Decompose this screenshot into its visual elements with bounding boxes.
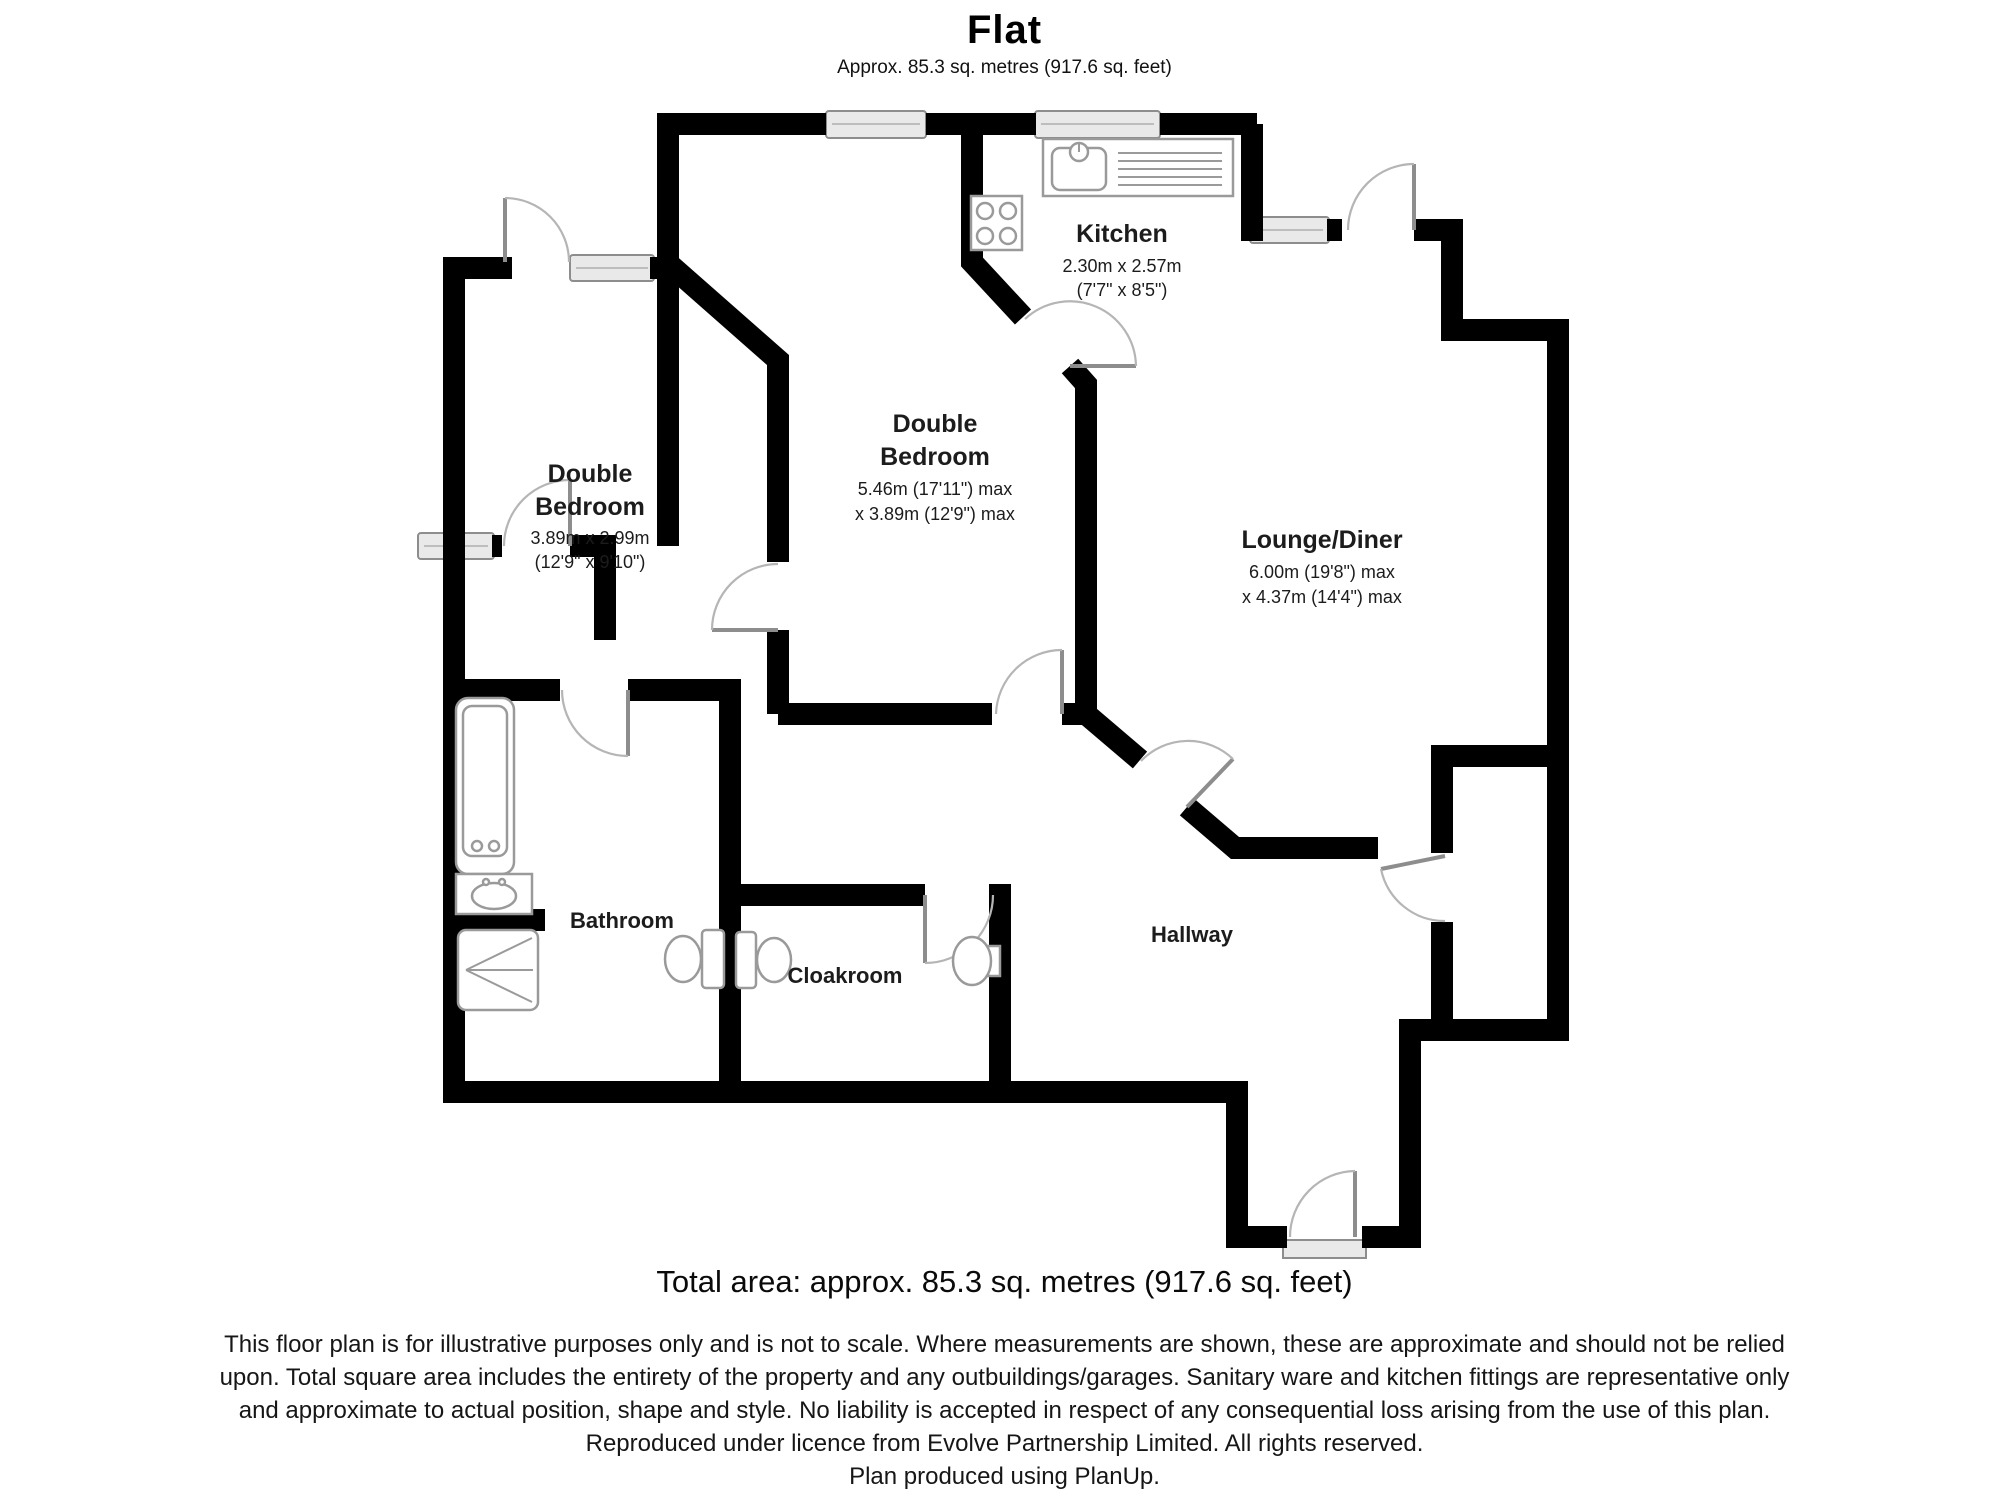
disclaimer-line: and approximate to actual position, shap… xyxy=(0,1394,2009,1427)
bathroom-toilet-icon xyxy=(665,930,724,988)
bedroom-left-label-1: Double xyxy=(548,460,633,488)
room-label-lounge: Lounge/Diner 6.00m (19'8") max x 4.37m (… xyxy=(1241,526,1402,607)
kitchen-sink-icon xyxy=(1043,139,1233,196)
lounge-dim-2: x 4.37m (14'4") max xyxy=(1242,587,1402,607)
hallway-label: Hallway xyxy=(1151,922,1234,947)
kitchen-label: Kitchen xyxy=(1076,220,1168,248)
bedroom-middle-dim-2: x 3.89m (12'9") max xyxy=(855,504,1015,524)
room-label-bedroom-left: Double Bedroom 3.89m x 2.99m (12'9" x 9'… xyxy=(530,460,649,572)
disclaimer-text: This floor plan is for illustrative purp… xyxy=(0,1328,2009,1493)
bedroom-left-dim-1: 3.89m x 2.99m xyxy=(530,528,649,548)
disclaimer-line: This floor plan is for illustrative purp… xyxy=(0,1328,2009,1361)
lounge-dim-1: 6.00m (19'8") max xyxy=(1249,562,1395,582)
room-label-bedroom-middle: Double Bedroom 5.46m (17'11") max x 3.89… xyxy=(855,410,1015,524)
total-area-text: Total area: approx. 85.3 sq. metres (917… xyxy=(0,1264,2009,1300)
cloakroom-label: Cloakroom xyxy=(788,963,903,988)
shower-icon xyxy=(458,930,538,1010)
bathtub-icon xyxy=(456,698,514,874)
disclaimer-line: Reproduced under licence from Evolve Par… xyxy=(0,1427,2009,1460)
cloakroom-toilet-icon xyxy=(736,932,791,988)
bedroom-middle-label-2: Bedroom xyxy=(880,443,990,471)
kitchen-dim-1: 2.30m x 2.57m xyxy=(1062,256,1181,276)
kitchen-hob-icon xyxy=(971,196,1022,250)
entrance-threshold xyxy=(1283,1240,1366,1258)
lounge-label: Lounge/Diner xyxy=(1241,526,1402,554)
kitchen-dim-2: (7'7" x 8'5") xyxy=(1077,280,1168,300)
bedroom-left-dim-2: (12'9" x 9'10") xyxy=(535,552,646,572)
bedroom-middle-label-1: Double xyxy=(893,410,978,438)
bathroom-label: Bathroom xyxy=(570,908,674,933)
bedroom-middle-dim-1: 5.46m (17'11") max xyxy=(858,479,1013,499)
disclaimer-line: upon. Total square area includes the ent… xyxy=(0,1361,2009,1394)
bedroom-left-label-2: Bedroom xyxy=(535,493,645,521)
floor-plan-page: Flat Approx. 85.3 sq. metres (917.6 sq. … xyxy=(0,0,2009,1500)
bathroom-basin-icon xyxy=(456,874,532,914)
disclaimer-line: Plan produced using PlanUp. xyxy=(0,1460,2009,1493)
room-label-kitchen: Kitchen 2.30m x 2.57m (7'7" x 8'5") xyxy=(1062,220,1181,300)
